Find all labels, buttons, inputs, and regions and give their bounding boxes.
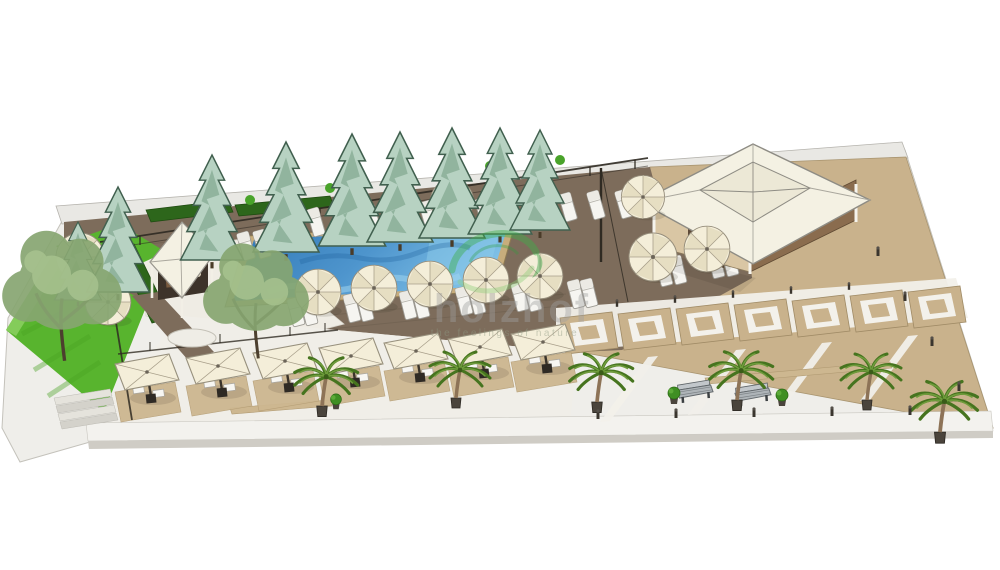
watermark-tagline: the feelings of nature xyxy=(431,328,579,339)
terrace-feature xyxy=(168,329,216,347)
site-plan-render: holzhof the feelings of nature xyxy=(0,0,1000,570)
render-canvas: holzhof the feelings of nature xyxy=(0,0,1000,570)
watermark-text: holzhof xyxy=(434,287,590,331)
